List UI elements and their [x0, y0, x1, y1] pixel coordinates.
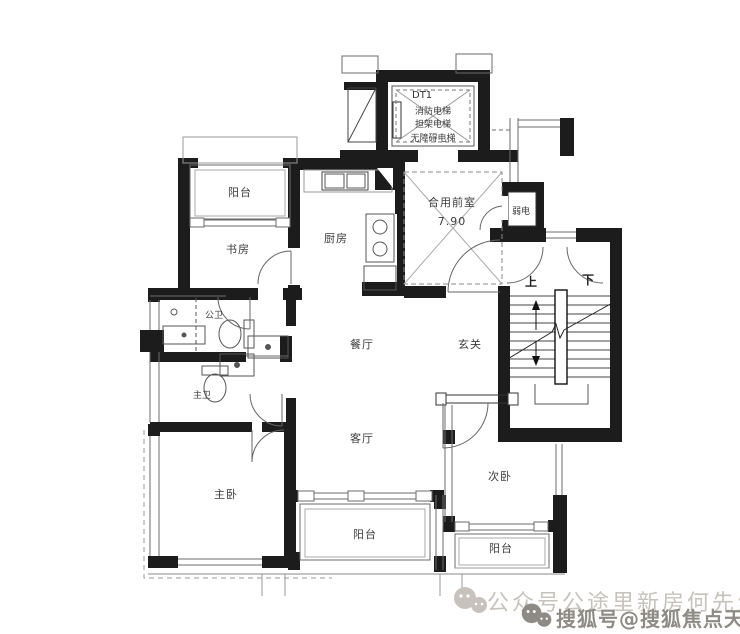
balcony-top-label: 阳台 [228, 185, 252, 199]
lobby-side-door-arc [480, 206, 502, 230]
study-door-arc [258, 251, 291, 284]
elevator-id-label: DT1 [412, 90, 432, 101]
floorplan-image: DT1 消防电梯 担架电梯 无障碍电梯 合用前室 7.90 弱电 阳台 书房 厨… [0, 0, 740, 634]
stairs-down-label: 下 [582, 273, 594, 287]
kitchen-sink [322, 172, 368, 190]
shared-lobby-area [404, 172, 502, 284]
living-label: 客厅 [350, 431, 374, 445]
weak-current-door-gap [500, 196, 508, 220]
dining-label: 餐厅 [350, 337, 374, 351]
second-bed-label: 次卧 [488, 469, 512, 483]
master-bed-label: 主卧 [214, 488, 238, 501]
master-bath-label: 主卫 [193, 389, 211, 401]
stair-well-outline [535, 384, 588, 404]
balcony-bottom-label: 阳台 [353, 527, 377, 541]
guest-toilet-tank [244, 320, 254, 348]
shower-head-icon [171, 309, 177, 315]
guest-toilet [219, 320, 241, 348]
master-bath-door-arc [250, 394, 282, 426]
stairs-up-label: 上 [525, 274, 537, 289]
lobby-label: 合用前室 [428, 195, 476, 209]
bathroom-fixtures [163, 298, 288, 402]
watermark-sohu-text: 搜狐号@搜狐焦点天门站 [556, 603, 740, 632]
foyer-label: 玄关 [458, 337, 482, 351]
staircase [506, 290, 614, 404]
thin-walls [148, 54, 576, 596]
balcony-right-label: 阳台 [489, 541, 513, 555]
elevator-line2-label: 担架电梯 [415, 118, 451, 130]
wechat-icon [452, 586, 490, 616]
elevator-line1-label: 消防电梯 [415, 105, 451, 117]
study-label: 书房 [226, 243, 250, 256]
walls [140, 70, 622, 573]
sohu-wechat-icon [520, 602, 554, 630]
lobby-area-label: 7.90 [438, 215, 467, 228]
weak-current-label: 弱电 [512, 205, 530, 217]
kitchen-stove [366, 214, 394, 262]
guest-bath-label: 公卫 [205, 310, 223, 321]
master-bed-door-arc [252, 430, 284, 462]
kitchen-label: 厨房 [324, 232, 348, 245]
floorplan-svg: DT1 消防电梯 担架电梯 无障碍电梯 合用前室 7.90 弱电 阳台 书房 厨… [0, 0, 740, 634]
elevator-line3-label: 无障碍电梯 [410, 132, 455, 144]
stair-direction-arrows [532, 300, 540, 366]
